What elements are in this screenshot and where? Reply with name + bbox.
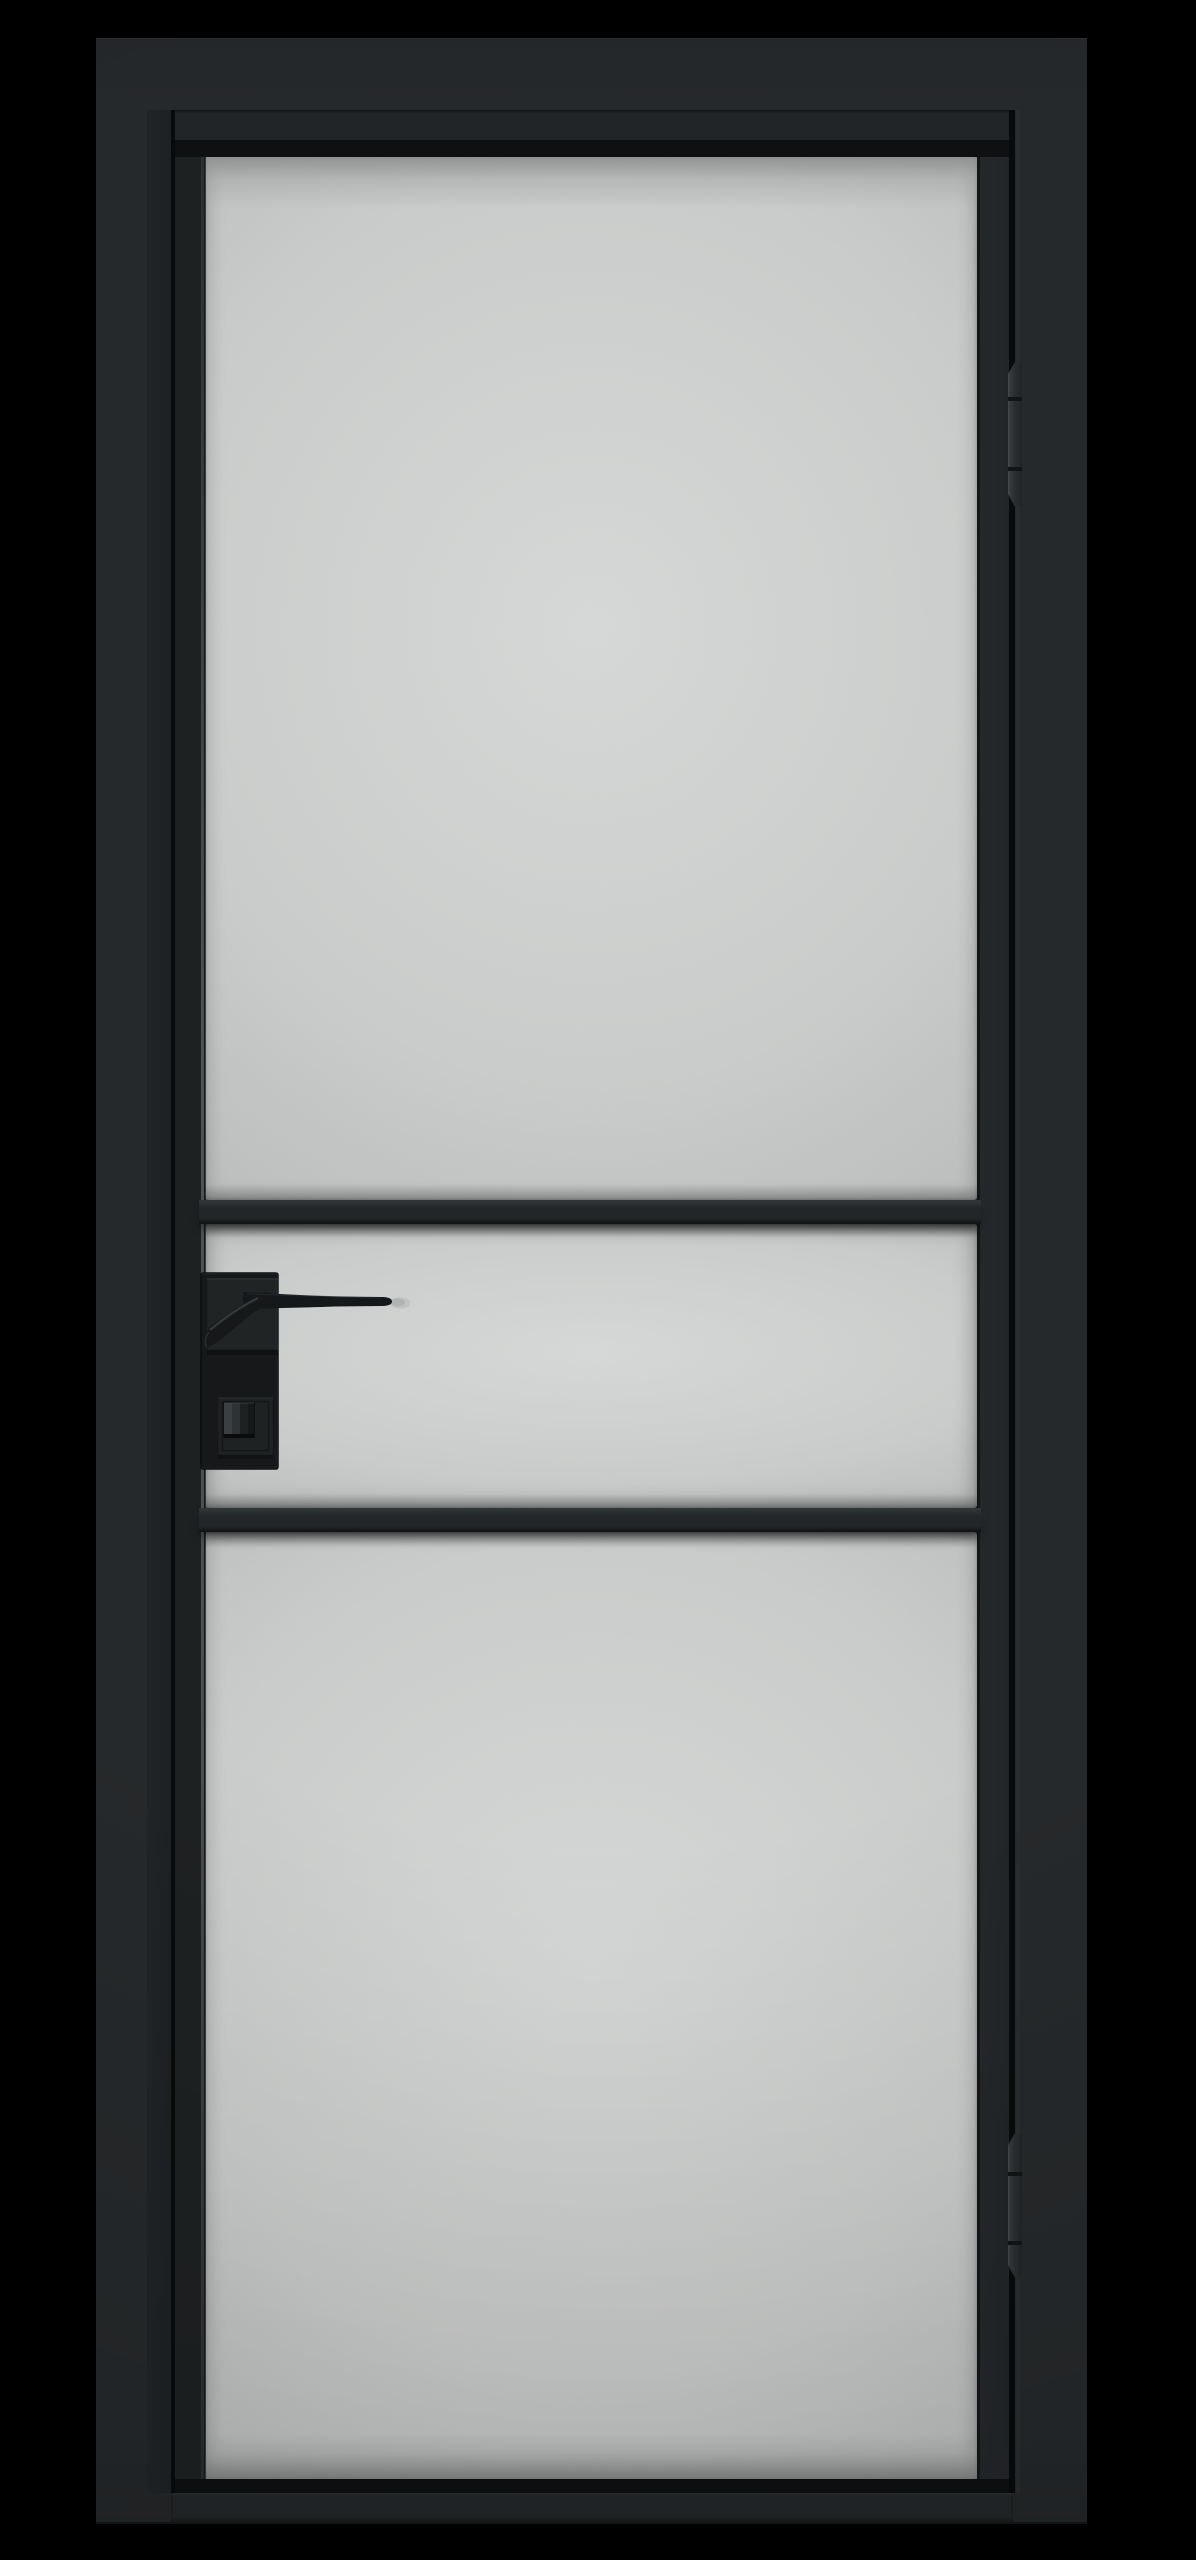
door-leaf-top-rail [171,110,1013,140]
bottom-glazing-channel-shadow [175,2479,1009,2493]
door-product-render [0,0,1196,2560]
mullion-bar-lower [199,1508,981,1532]
lever-tip-shadow [389,1298,410,1309]
frame-left-reveal [147,110,171,2493]
leaf-frame-seam-left [171,110,175,2493]
thumbturn-knob [223,1402,255,1438]
mullion-bar-upper [199,1200,981,1224]
hinge-upper [1005,361,1024,508]
handle-assembly [195,1262,410,1477]
frosted-glass-panel-upper [205,157,977,1200]
hinge-lower [1005,2132,1024,2279]
frosted-glass-panel-lower [205,1532,977,2479]
top-glazing-channel-shadow [171,140,1013,157]
door-bottom-rail [171,2493,1013,2524]
